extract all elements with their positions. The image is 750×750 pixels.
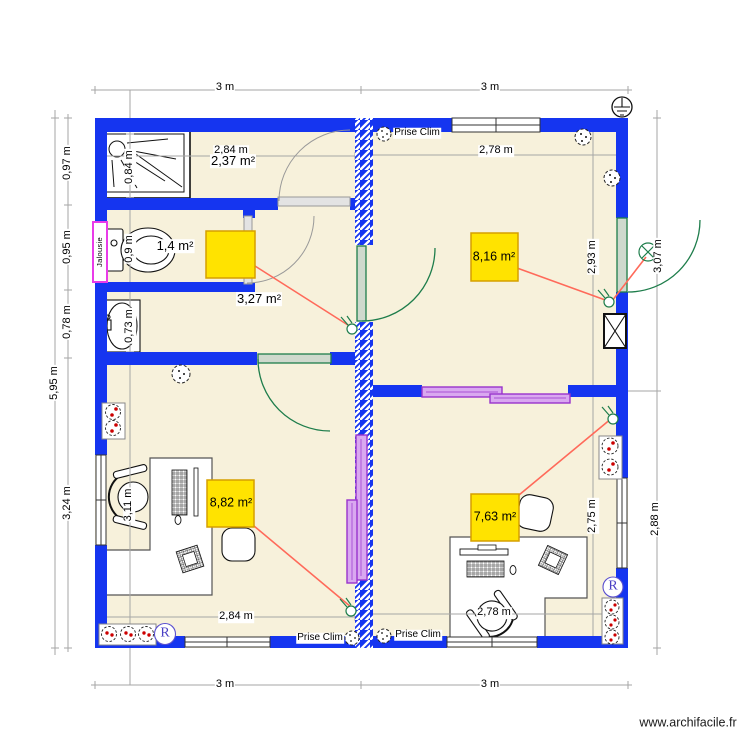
dim-left-seg1: 0,97 m bbox=[62, 145, 74, 181]
dim-left-seg2: 0,95 m bbox=[62, 229, 74, 265]
shower[interactable] bbox=[100, 128, 190, 198]
floor-plan-svg bbox=[0, 0, 750, 750]
dim-left-seg4: 3,24 m bbox=[62, 485, 74, 521]
guest-chair-left[interactable] bbox=[222, 528, 255, 561]
dim-height-total: 5,95 m bbox=[49, 365, 61, 401]
wall-hall-bottom-left bbox=[95, 352, 257, 365]
wall-hall-bottom-right bbox=[330, 352, 355, 365]
wall-right-rooms-divider-right bbox=[568, 385, 616, 397]
dim-right-inner-bottom: 2,75 m bbox=[587, 498, 599, 534]
guest-chair-right[interactable] bbox=[515, 493, 555, 533]
network-socket-label: R bbox=[159, 627, 170, 642]
dim-room-tr-width: 2,78 m bbox=[478, 145, 514, 157]
watermark: www.archifacile.fr bbox=[638, 716, 737, 729]
dim-right-outer-top: 3,07 m bbox=[653, 238, 665, 274]
area-label-office-bottom-right[interactable]: 7,63 m² bbox=[473, 510, 517, 523]
area-label-office-bottom-left[interactable]: 8,82 m² bbox=[209, 496, 253, 509]
window-top bbox=[452, 118, 540, 132]
dim-top-right: 3 m bbox=[480, 82, 500, 94]
clim-socket-icon bbox=[377, 629, 391, 643]
window-right bbox=[617, 478, 627, 568]
prise-clim-label-top-right: Prise Clim bbox=[393, 128, 441, 139]
dim-room-br-width: 2,78 m bbox=[476, 607, 512, 619]
dim-right-outer-bottom: 2,88 m bbox=[650, 501, 662, 537]
area-label-shower-room[interactable]: 2,37 m² bbox=[210, 154, 256, 168]
area-label-hall[interactable]: 3,27 m² bbox=[236, 292, 282, 306]
dim-top-left: 3 m bbox=[215, 82, 235, 94]
dim-room-bl-width: 2,84 m bbox=[218, 611, 254, 623]
wall-right-rooms-divider-left bbox=[373, 385, 422, 397]
dim-bottom-left: 3 m bbox=[215, 679, 235, 691]
wall-shower-room-bottom bbox=[95, 198, 278, 210]
wall-central-hatched-top bbox=[355, 118, 373, 245]
area-box-hall bbox=[206, 231, 255, 278]
dim-inner-shower: 0,84 m bbox=[124, 149, 136, 185]
dim-inner-sink: 0,73 m bbox=[124, 308, 136, 344]
window-left bbox=[96, 455, 106, 545]
monitor-icon bbox=[172, 470, 187, 515]
jalousie-label: Jalousie bbox=[96, 236, 104, 268]
dim-bottom-right: 3 m bbox=[480, 679, 500, 691]
dim-right-inner-top: 2,93 m bbox=[587, 239, 599, 275]
duct-icon[interactable] bbox=[604, 314, 626, 348]
prise-clim-label-bottom-right: Prise Clim bbox=[394, 630, 442, 641]
wall-right-1 bbox=[616, 118, 628, 218]
area-label-office-top-right[interactable]: 8,16 m² bbox=[472, 250, 516, 263]
clim-socket-icon bbox=[345, 631, 359, 645]
window-bottom-left bbox=[185, 637, 270, 647]
dim-inner-office-left: 3,11 m bbox=[123, 488, 135, 523]
window-bottom-right bbox=[447, 637, 537, 647]
dim-inner-wc: 0,9 m bbox=[124, 234, 136, 264]
clim-socket-icon bbox=[377, 127, 391, 141]
earth-ground-icon[interactable] bbox=[612, 97, 632, 117]
wall-wc-bottom bbox=[95, 282, 250, 292]
area-label-wc[interactable]: 1,4 m² bbox=[156, 239, 195, 253]
floor-plan-canvas: 3 m 3 m 3 m 3 m 5,95 m 0,97 m 0,95 m 0,7… bbox=[0, 0, 750, 750]
network-socket-label: R bbox=[607, 580, 618, 595]
dim-left-seg3: 0,78 m bbox=[62, 304, 74, 340]
prise-clim-label-bottom-left: Prise Clim bbox=[296, 633, 344, 644]
keyboard-icon bbox=[467, 561, 504, 577]
